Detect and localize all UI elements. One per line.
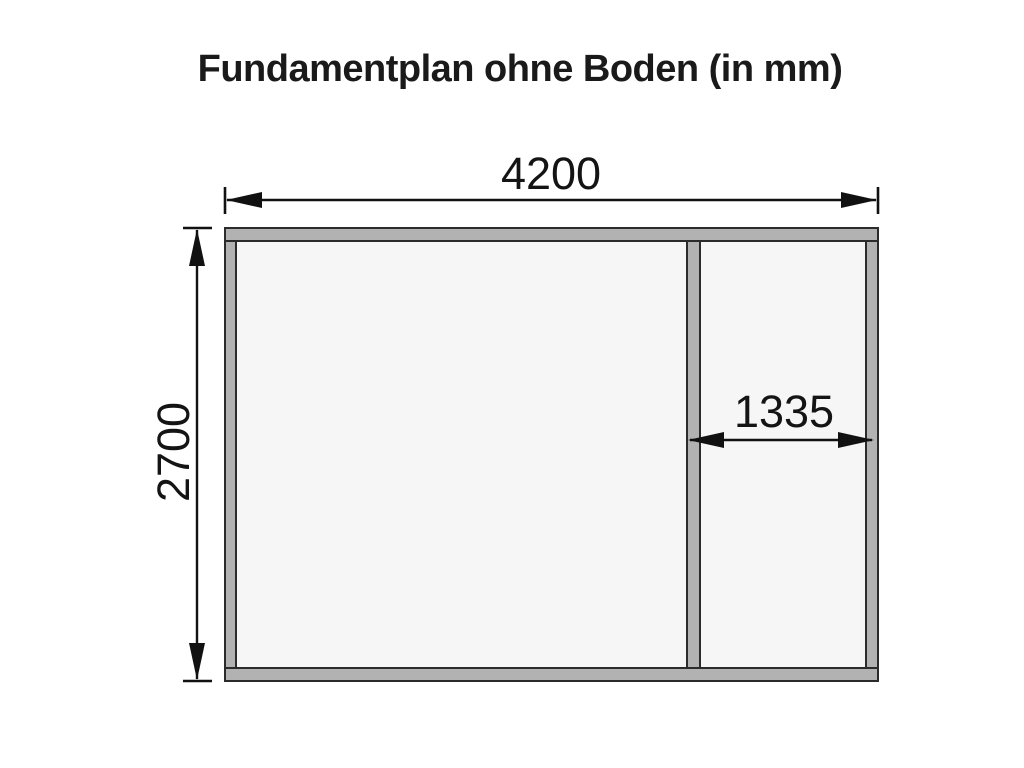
- arrowhead-left-icon: [226, 192, 262, 208]
- frame-right-beam: [866, 240, 878, 668]
- frame-left-beam: [225, 240, 236, 668]
- frame-bottom-beam: [225, 668, 878, 681]
- dimension-overall-depth-label: 2700: [148, 402, 199, 502]
- dimension-overall-depth: 2700: [148, 228, 212, 681]
- frame-divider-beam: [687, 240, 700, 668]
- dimension-overall-width: 4200: [225, 148, 878, 214]
- arrowhead-right-icon: [841, 192, 877, 208]
- frame-interior: [225, 228, 878, 681]
- arrowhead-up-icon: [189, 229, 205, 266]
- foundation-frame: [225, 228, 878, 681]
- dimension-right-section-label: 1335: [734, 386, 834, 437]
- foundation-plan-diagram: Fundamentplan ohne Boden (in mm) 4200 27…: [0, 0, 1024, 768]
- foundation-plan-page: Fundamentplan ohne Boden (in mm) 4200 27…: [0, 0, 1024, 768]
- page-title: Fundamentplan ohne Boden (in mm): [198, 48, 843, 90]
- arrowhead-down-icon: [189, 643, 205, 680]
- frame-top-beam: [225, 228, 878, 241]
- dimension-overall-width-label: 4200: [501, 148, 601, 199]
